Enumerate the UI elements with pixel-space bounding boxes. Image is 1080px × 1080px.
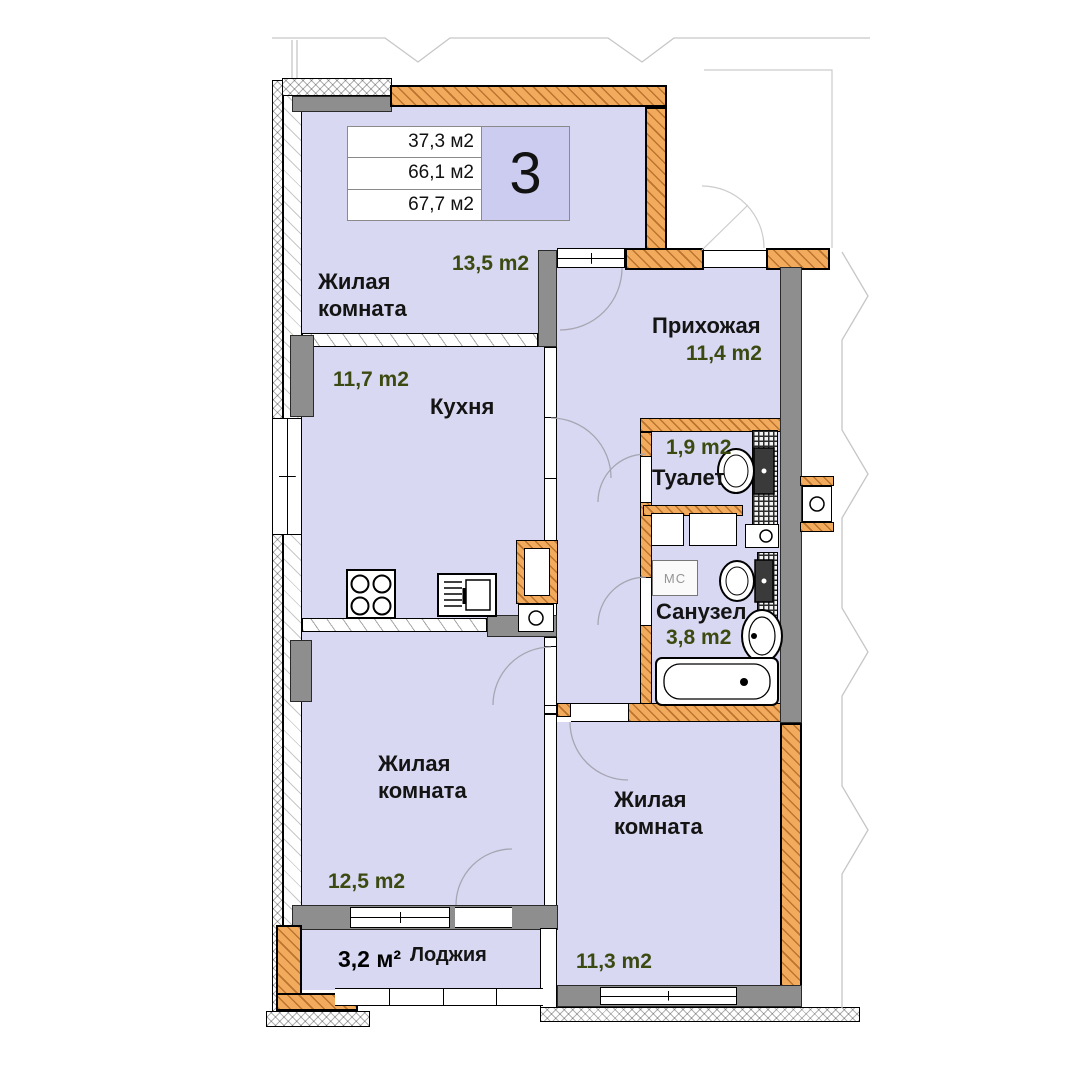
area-row: 67,7 м2 [348, 190, 482, 220]
wall-segment [302, 333, 538, 347]
wall-segment [283, 80, 302, 1012]
area-row: 66,1 м2 [348, 158, 482, 189]
niche-box [689, 513, 737, 546]
room-label-bathroom: Санузел [656, 598, 746, 625]
vent-shaft [757, 552, 778, 642]
wall-segment [282, 78, 392, 96]
wall-segment [292, 96, 392, 112]
wall-segment [640, 432, 652, 457]
room-label-loggia: Лоджия [410, 944, 487, 967]
room-living-right [557, 722, 782, 985]
wall-segment [544, 637, 557, 647]
room-label-kitchen: Кухня [430, 393, 494, 420]
wall-segment [780, 723, 802, 988]
washing-machine-box: МС [652, 560, 698, 596]
wall-segment [538, 250, 557, 347]
wall-segment [557, 703, 571, 717]
door-opening [571, 703, 628, 722]
room-hallway [557, 418, 640, 712]
wall-segment [625, 248, 704, 270]
room-area-hallway: 11,4 m2 [686, 342, 762, 366]
room-label-toilet: Туалет [652, 464, 725, 491]
vent-duct-core [524, 548, 550, 596]
wall-segment [544, 705, 557, 714]
pipe-riser-box [518, 604, 554, 632]
room-area-bathroom: 3,8 m2 [666, 626, 731, 650]
room-area-living-top: 13,5 m2 [452, 252, 529, 276]
room-living-top [557, 107, 648, 248]
door-opening [640, 578, 652, 625]
room-label-living-right: Жилая комната [614, 786, 703, 840]
floor-plan: МС [0, 0, 1080, 1080]
room-area-toilet: 1,9 m2 [666, 436, 731, 460]
room-label-living-top: Жилая комната [318, 268, 407, 322]
window [350, 907, 450, 928]
niche-box [651, 513, 684, 546]
room-area-kitchen: 11,7 m2 [333, 368, 409, 392]
wall-segment [290, 640, 312, 702]
wall-segment [640, 625, 652, 705]
area-row: 37,3 м2 [348, 127, 482, 158]
wall-segment [780, 267, 802, 723]
wall-segment [390, 85, 667, 107]
door-opening [544, 647, 557, 705]
window [557, 248, 625, 268]
wall-segment [266, 1011, 370, 1027]
wall-segment [800, 522, 834, 532]
info-table: 37,3 м2 66,1 м2 67,7 м2 [347, 126, 483, 221]
room-area-loggia: 3,2 м² [338, 946, 401, 973]
window [272, 418, 302, 535]
door-opening [640, 457, 652, 502]
wall-segment [628, 703, 782, 722]
pipe-riser-box [745, 524, 779, 548]
room-label-hallway: Прихожая [652, 312, 761, 339]
washing-machine-label: МС [664, 571, 686, 586]
wall-segment [290, 335, 314, 417]
room-area-living-left: 12,5 m2 [328, 870, 405, 894]
window [600, 987, 737, 1005]
stairwell-outline [702, 70, 832, 250]
wall-segment [302, 618, 487, 632]
wall-segment [544, 714, 557, 907]
wall-segment [645, 107, 667, 250]
rooms-count-badge: 3 [481, 126, 570, 221]
wall-segment [800, 476, 834, 486]
wall-segment [540, 1007, 860, 1022]
pipe-riser-box [802, 486, 832, 522]
room-label-living-left: Жилая комната [378, 750, 467, 804]
door-opening [544, 418, 557, 478]
room-area-living-right: 11,3 m2 [576, 950, 652, 974]
loggia-glazing [335, 988, 543, 1006]
door-opening [455, 907, 512, 928]
wall-segment [272, 80, 283, 1012]
wall-segment [544, 347, 557, 418]
door-opening [704, 250, 766, 268]
